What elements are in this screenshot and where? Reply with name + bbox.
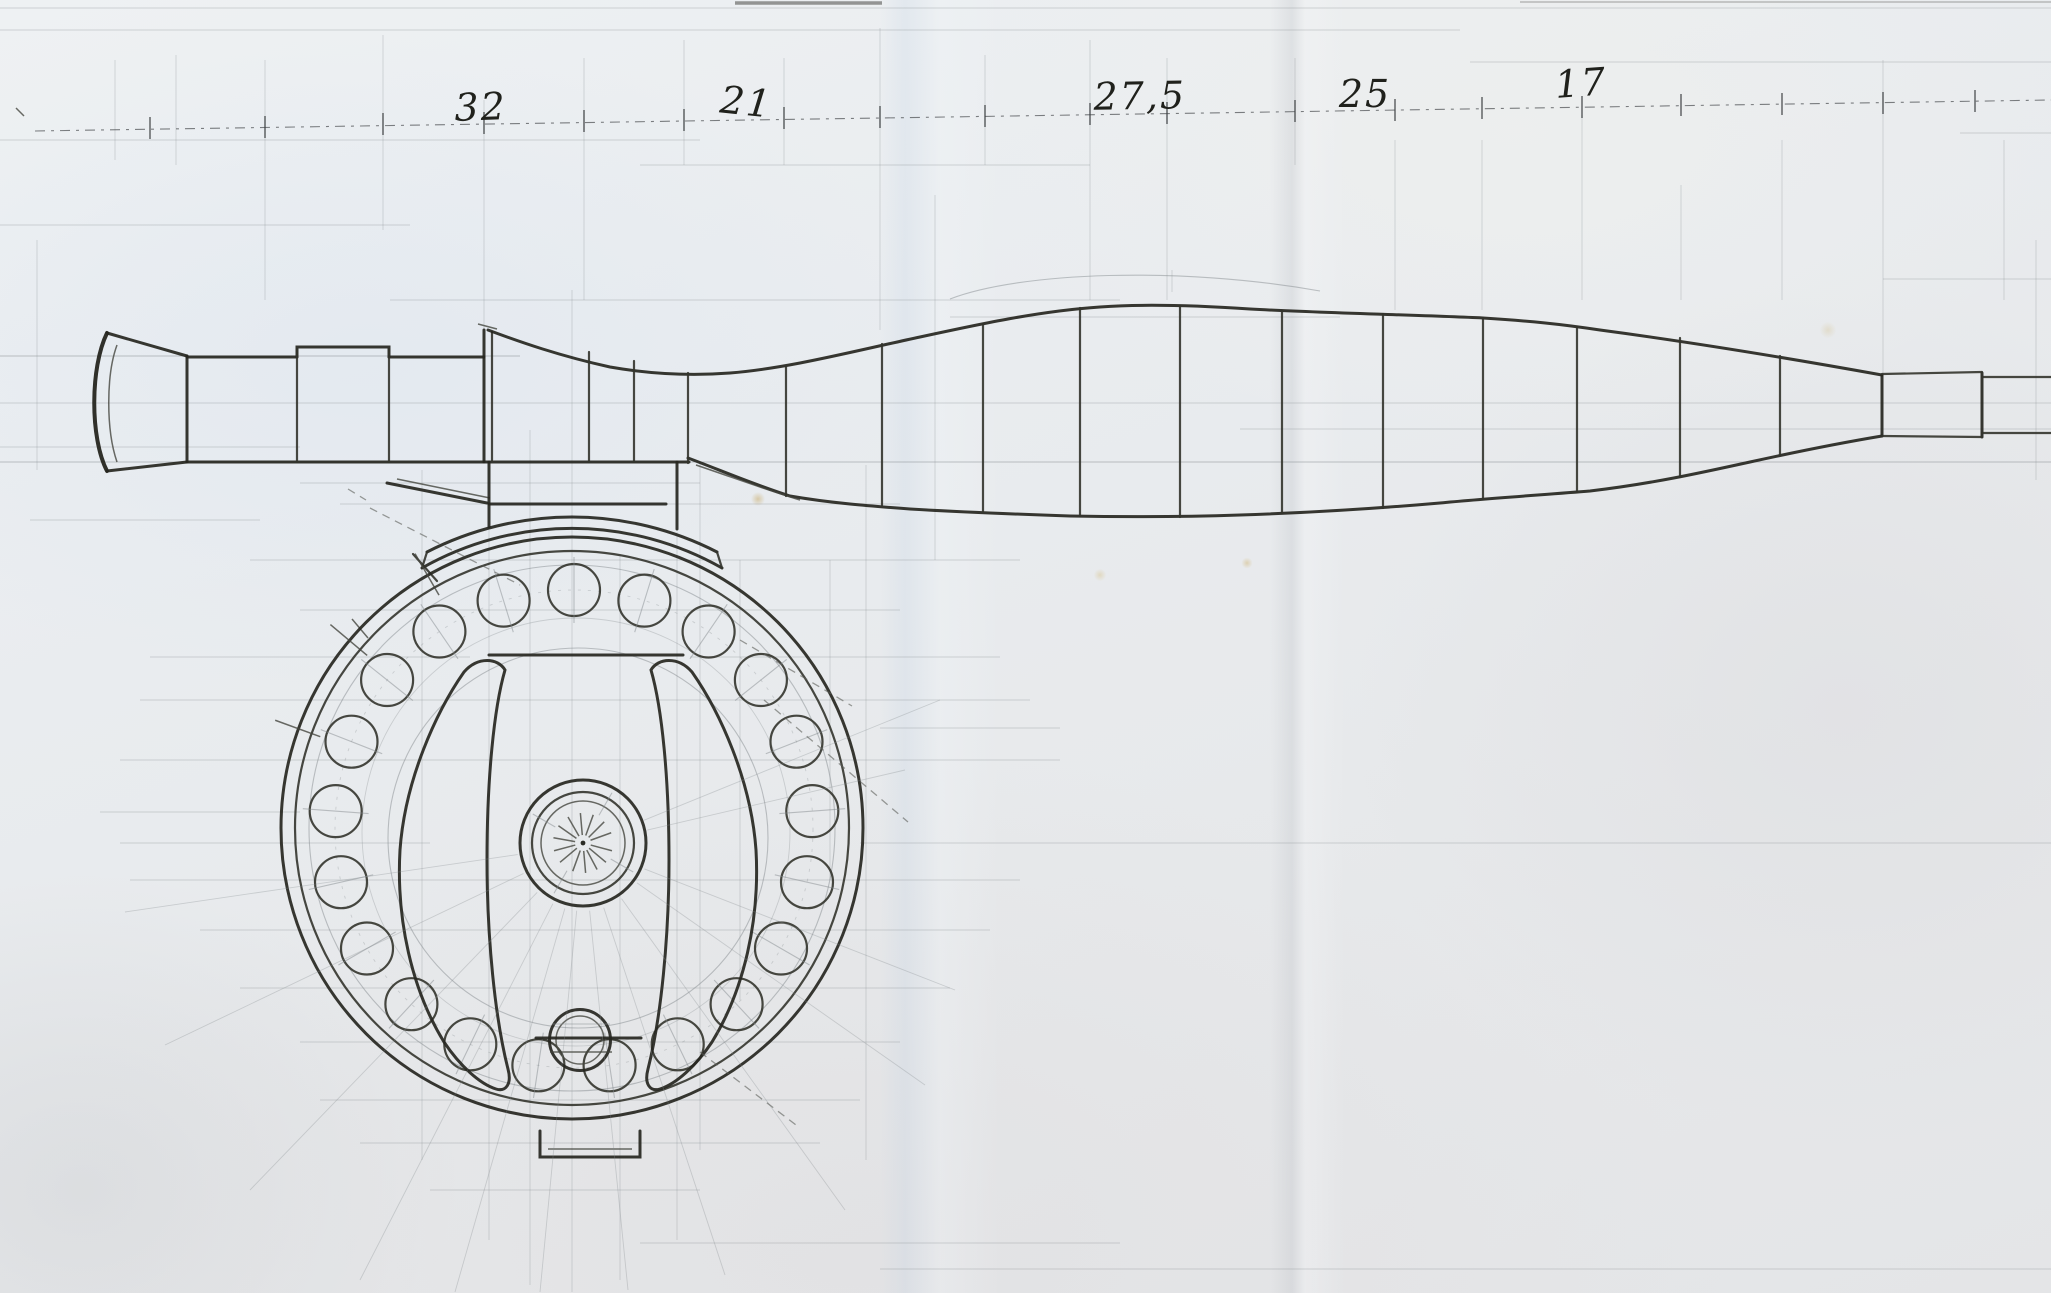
rod-butt-cap [94, 333, 187, 471]
technical-drawing-svg: 32 21 27,5 25 17 [0, 0, 2051, 1293]
dimension-label: 25 [1338, 72, 1391, 116]
scan-edge-marks [16, 2, 2051, 116]
dimension-label: 27,5 [1092, 73, 1186, 119]
dimension-ticks [150, 90, 1975, 139]
cork-ring-lines [589, 306, 1780, 517]
rod-side-view [94, 270, 2051, 517]
reel-hub [520, 780, 646, 906]
reel-foot [352, 462, 722, 638]
drawing-sheet: 32 21 27,5 25 17 [0, 0, 2051, 1293]
rod-cork-grip [478, 305, 1882, 517]
rod-reel-seat [187, 347, 689, 462]
construction-lines [0, 8, 2051, 1292]
dimension-line [35, 100, 2051, 131]
dashed-diagonals [348, 489, 908, 1128]
dimension-label: 32 [454, 84, 508, 130]
dimension-annotations: 32 21 27,5 25 17 [454, 59, 1609, 130]
rod-blank [1982, 377, 2051, 433]
fly-reel-front-view [125, 462, 955, 1292]
dimension-line-group [35, 90, 2051, 139]
radial-construction-lines [125, 700, 955, 1292]
dimension-label: 21 [717, 77, 775, 126]
dimension-label: 17 [1553, 59, 1608, 107]
ghost-sketch-arc [950, 275, 1320, 299]
rod-winding-check [1882, 372, 1982, 437]
